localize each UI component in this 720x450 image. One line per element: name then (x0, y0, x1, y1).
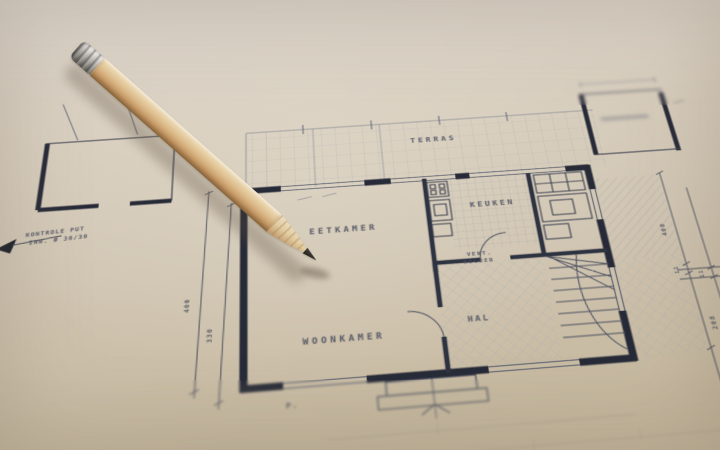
depth-of-field-blur-bottom (0, 380, 720, 450)
hal-label: HAL (467, 313, 491, 324)
dim-left-330: 330 (205, 328, 214, 344)
dim-left-400: 400 (182, 298, 191, 313)
kitchen-floor-grid (444, 173, 542, 251)
hall-floor-hatch (435, 257, 563, 371)
blueprint-photo-scene: TERRAS EETKAMER KEUKEN WOONKAMER HAL VEN… (0, 0, 720, 450)
